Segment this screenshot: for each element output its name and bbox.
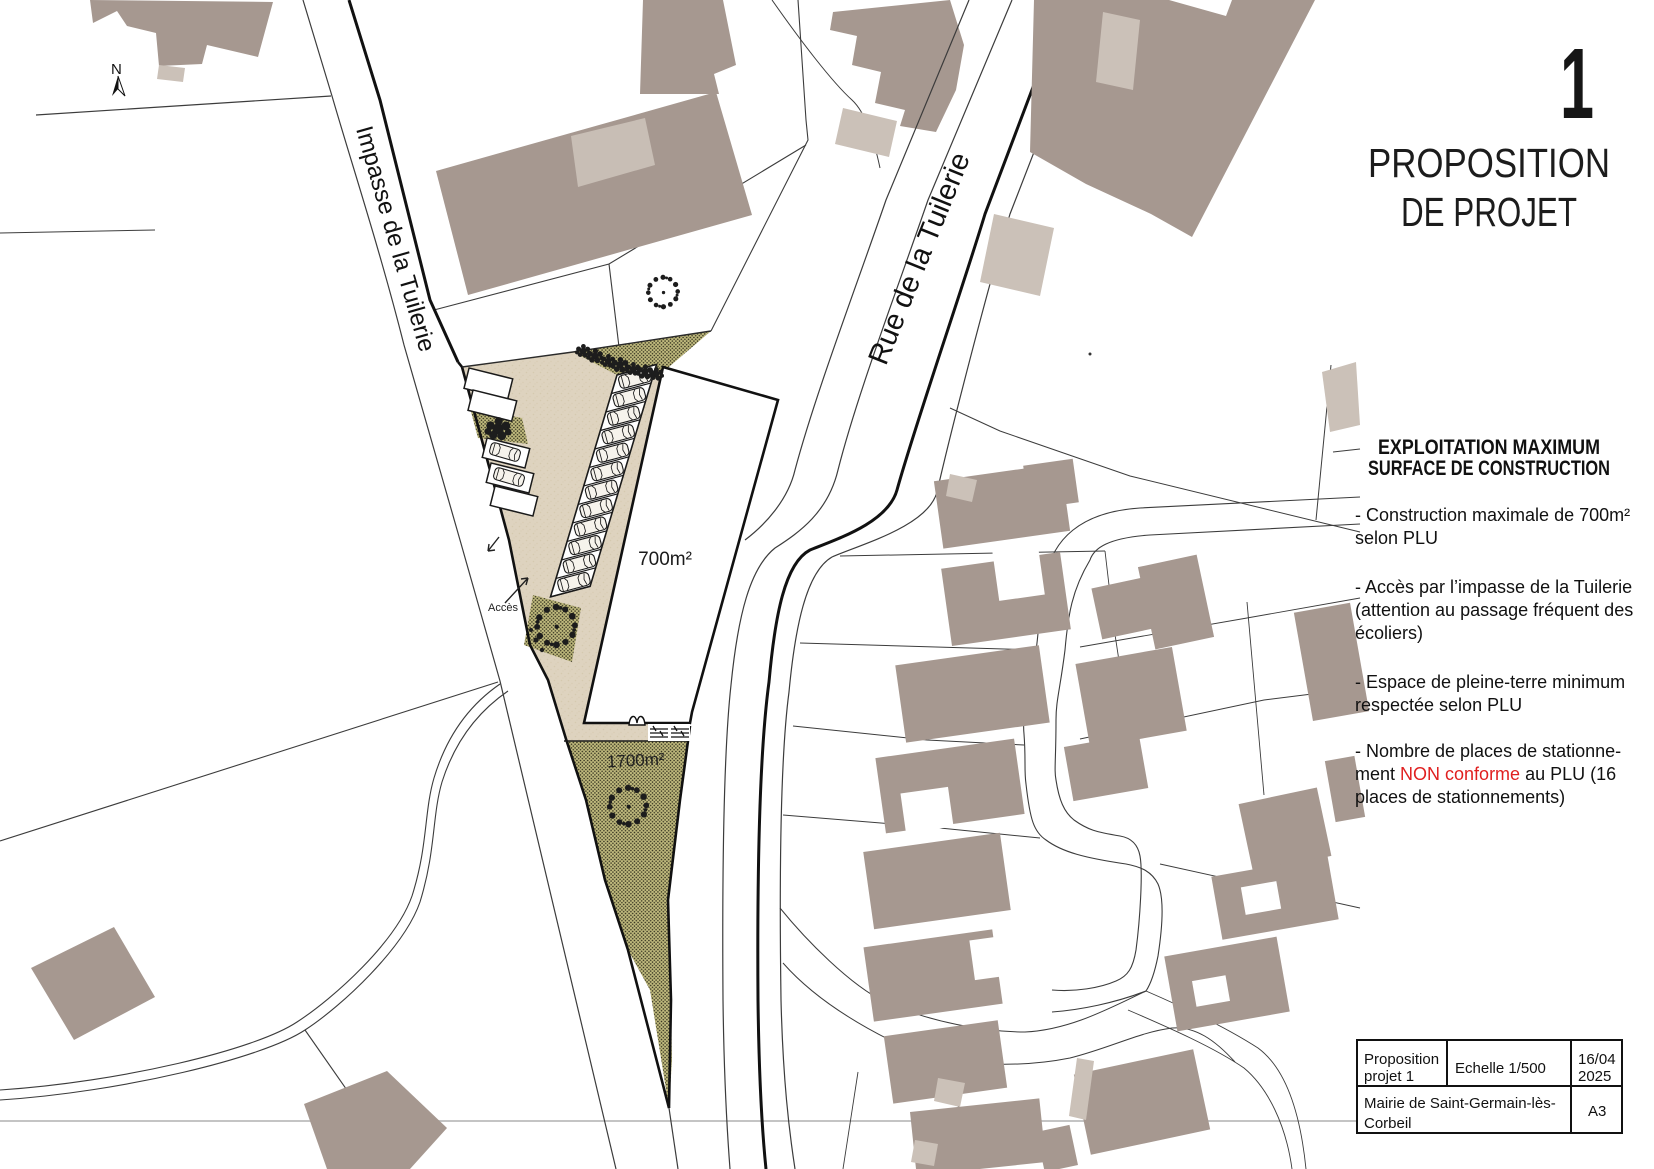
svg-text:Echelle 1/500: Echelle 1/500 — [1455, 1060, 1546, 1077]
svg-text:PROPOSITION: PROPOSITION — [1368, 140, 1610, 186]
svg-text:EXPLOITATION MAXIMUM: EXPLOITATION MAXIMUM — [1378, 436, 1600, 459]
svg-text:Mairie de Saint-Germain-lès-: Mairie de Saint-Germain-lès- — [1364, 1095, 1556, 1112]
svg-text:16/04: 16/04 — [1578, 1051, 1616, 1068]
svg-text:1700m²: 1700m² — [606, 749, 665, 771]
svg-text:A3: A3 — [1588, 1103, 1606, 1120]
svg-text:écoliers): écoliers) — [1355, 623, 1423, 643]
svg-text:projet 1: projet 1 — [1364, 1068, 1414, 1085]
svg-text:700m²: 700m² — [638, 549, 692, 570]
svg-text:1: 1 — [1560, 28, 1594, 140]
svg-text:N: N — [111, 61, 122, 78]
svg-text:Accès: Accès — [488, 602, 518, 614]
svg-text:places de stationnements): places de stationnements) — [1355, 787, 1565, 807]
svg-text:ment NON conforme au PLU (16: ment NON conforme au PLU (16 — [1355, 764, 1616, 784]
svg-text:- Nombre de places de stationn: - Nombre de places de stationne- — [1355, 741, 1621, 761]
svg-text:2025: 2025 — [1578, 1068, 1611, 1085]
svg-text:Proposition: Proposition — [1364, 1051, 1439, 1068]
svg-text:Corbeil: Corbeil — [1364, 1115, 1412, 1132]
svg-text:DE PROJET: DE PROJET — [1401, 189, 1577, 235]
svg-text:(attention au passage fréquent: (attention au passage fréquent des — [1355, 600, 1633, 620]
svg-text:- Construction maximale de 700: - Construction maximale de 700m² — [1355, 505, 1630, 525]
svg-text:respectée selon PLU: respectée selon PLU — [1355, 695, 1522, 715]
svg-text:selon PLU: selon PLU — [1355, 528, 1438, 548]
svg-text:- Espace de pleine-terre minim: - Espace de pleine-terre minimum — [1355, 672, 1625, 692]
svg-text:- Accès par l’impasse de la Tu: - Accès par l’impasse de la Tuilerie — [1355, 577, 1632, 597]
svg-text:SURFACE DE CONSTRUCTION: SURFACE DE CONSTRUCTION — [1368, 457, 1610, 480]
